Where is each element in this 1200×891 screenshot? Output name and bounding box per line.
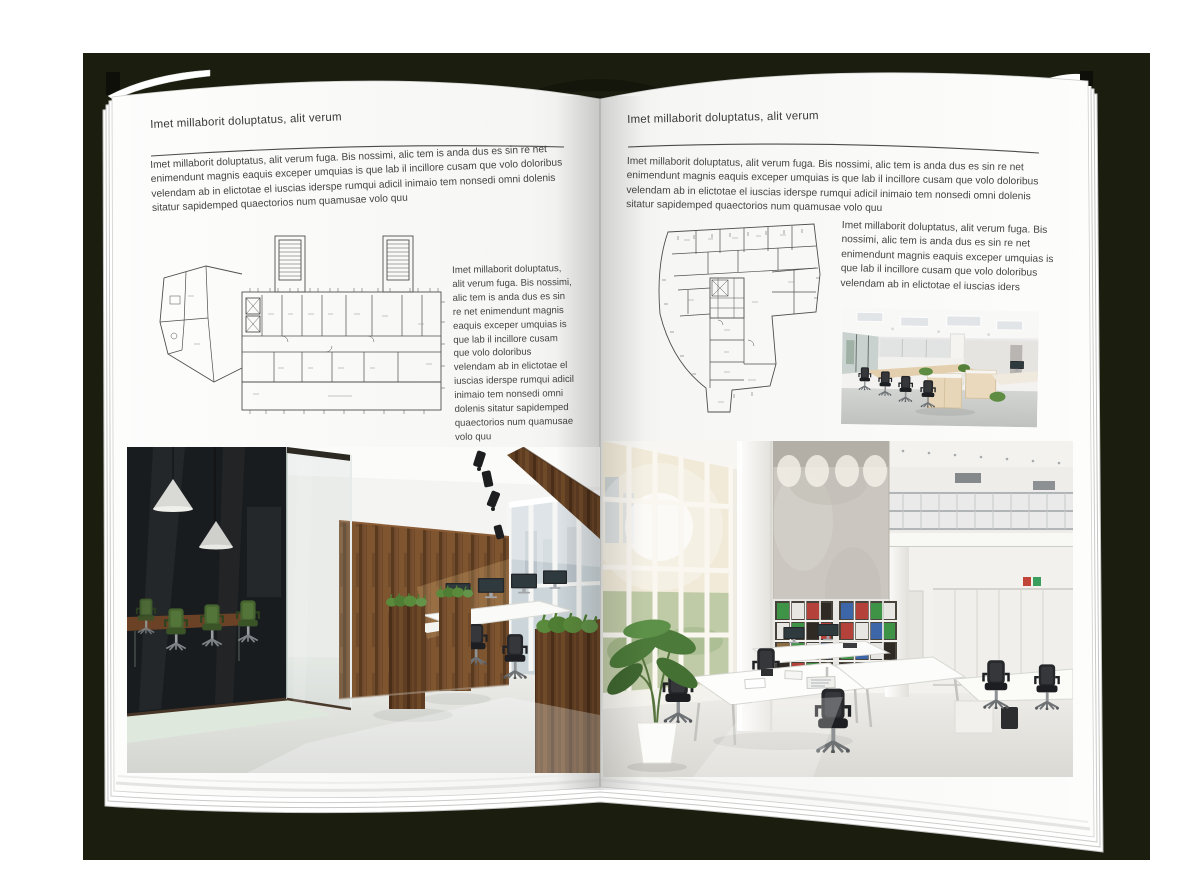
- office-photo-right: [603, 441, 1073, 777]
- office-photo-small: [841, 308, 1039, 427]
- magazine-mockup-stage: Imet millaborit doluptatus, alit verum I…: [0, 0, 1200, 891]
- right-intro-paragraph: Imet millaborit doluptatus, alit verum f…: [626, 155, 1045, 219]
- floor-plan-left: [158, 232, 452, 415]
- floor-plan-right: [648, 220, 840, 416]
- glass-partition: [287, 447, 351, 709]
- right-header-rule: [627, 138, 1041, 156]
- right-caption-text: Imet millaborit doluptatus, alit verum f…: [840, 219, 1058, 297]
- mezzanine-balcony: [887, 467, 1073, 547]
- office-photo-left: [127, 447, 600, 773]
- left-caption-text: Imet millaborit doluptatus, alit verum f…: [452, 262, 577, 445]
